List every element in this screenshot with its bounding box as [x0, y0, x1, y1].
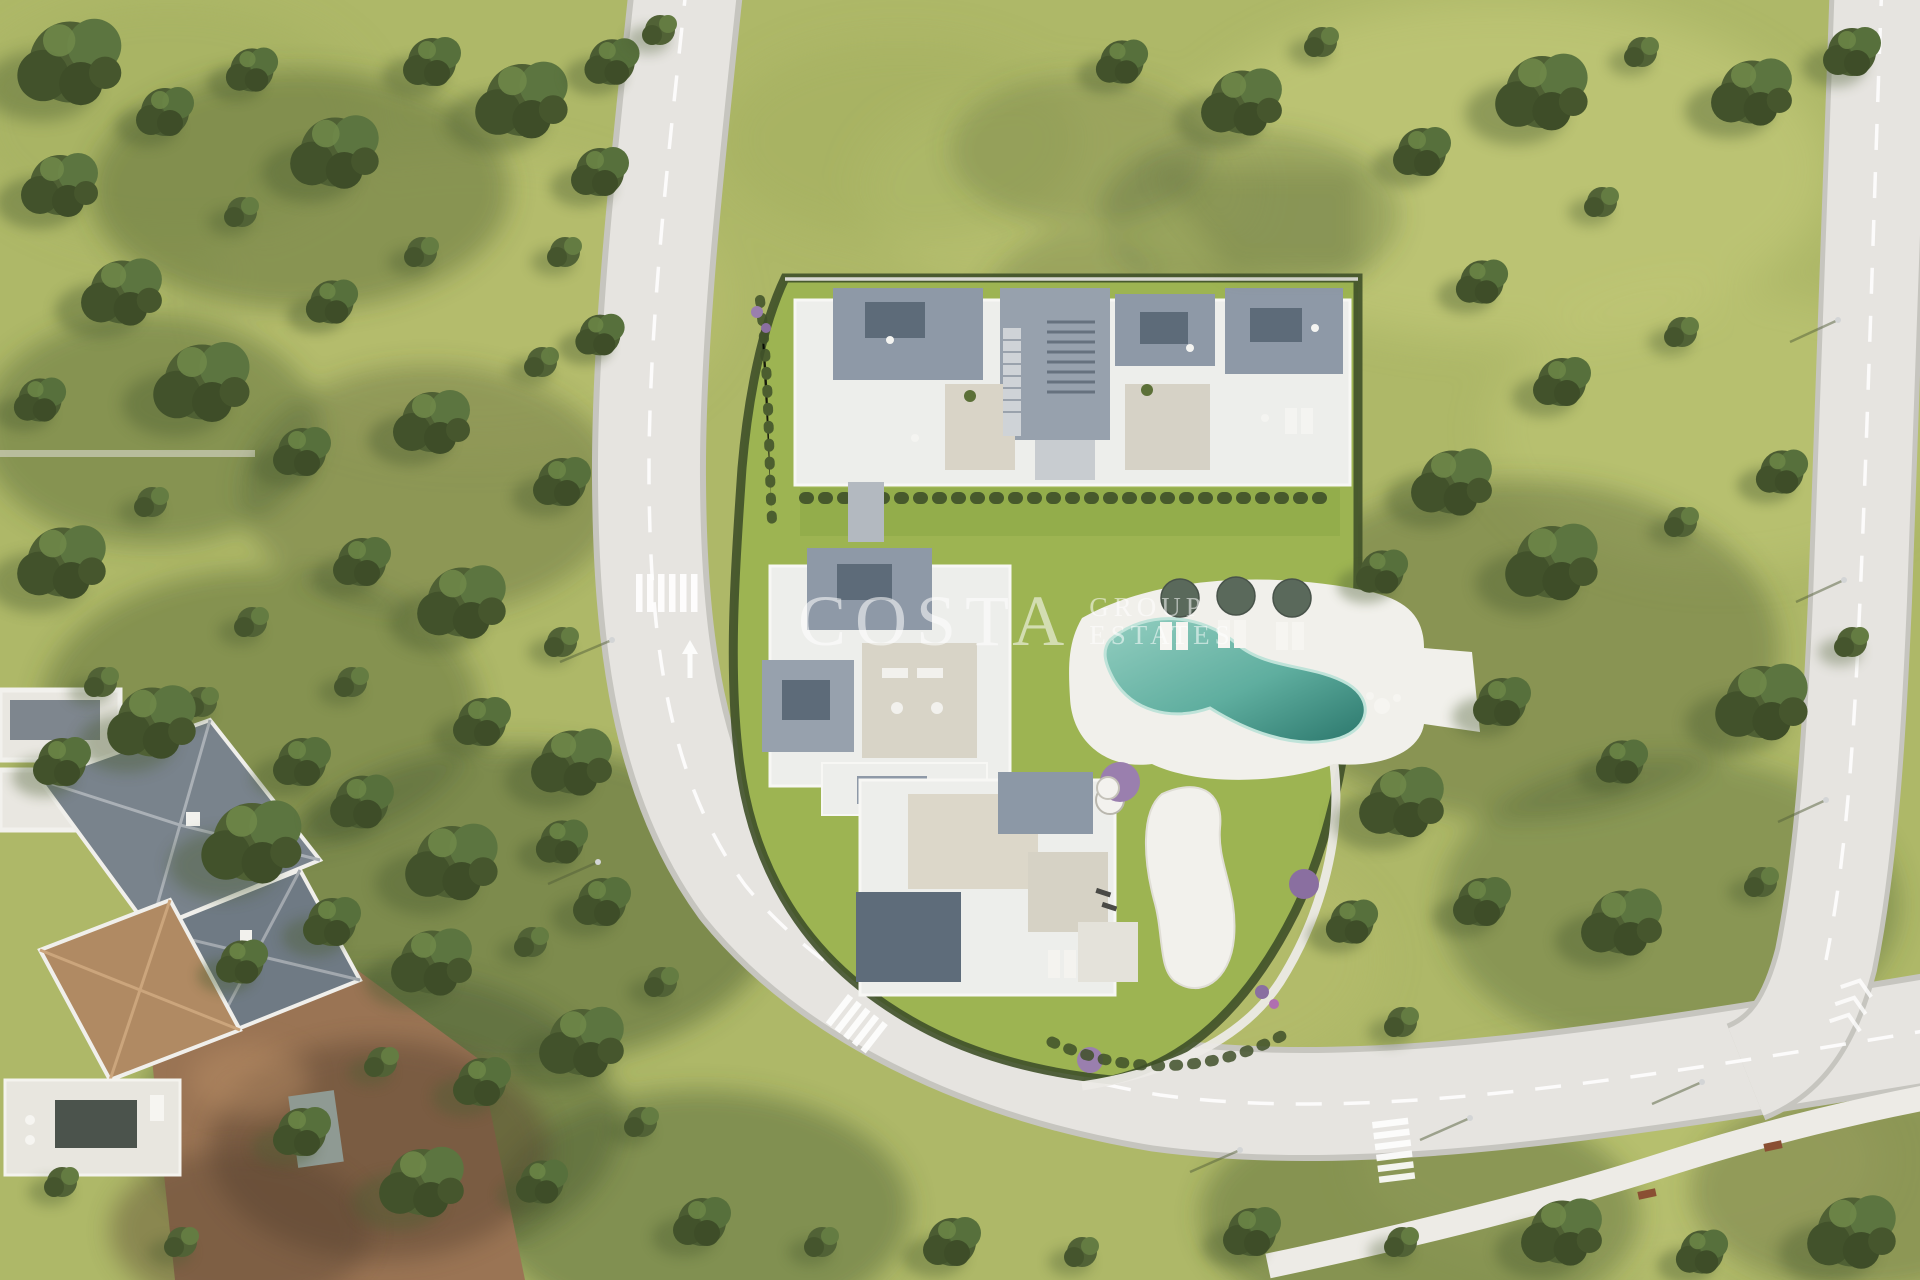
dark-parasols	[1161, 577, 1311, 617]
purple-flowers	[751, 306, 763, 318]
pergola	[55, 1100, 137, 1148]
side-stairs	[848, 482, 884, 542]
south-building-cluster	[856, 772, 1138, 995]
jacaranda-tree	[1289, 869, 1319, 899]
west-building-cluster	[762, 548, 1010, 815]
neighbor-wall	[0, 450, 255, 457]
scene-svg	[0, 0, 1920, 1280]
white-parasol	[1097, 777, 1119, 799]
north-building-complex	[795, 288, 1350, 485]
aerial-render: COSTA GROUP ESTATES	[0, 0, 1920, 1280]
